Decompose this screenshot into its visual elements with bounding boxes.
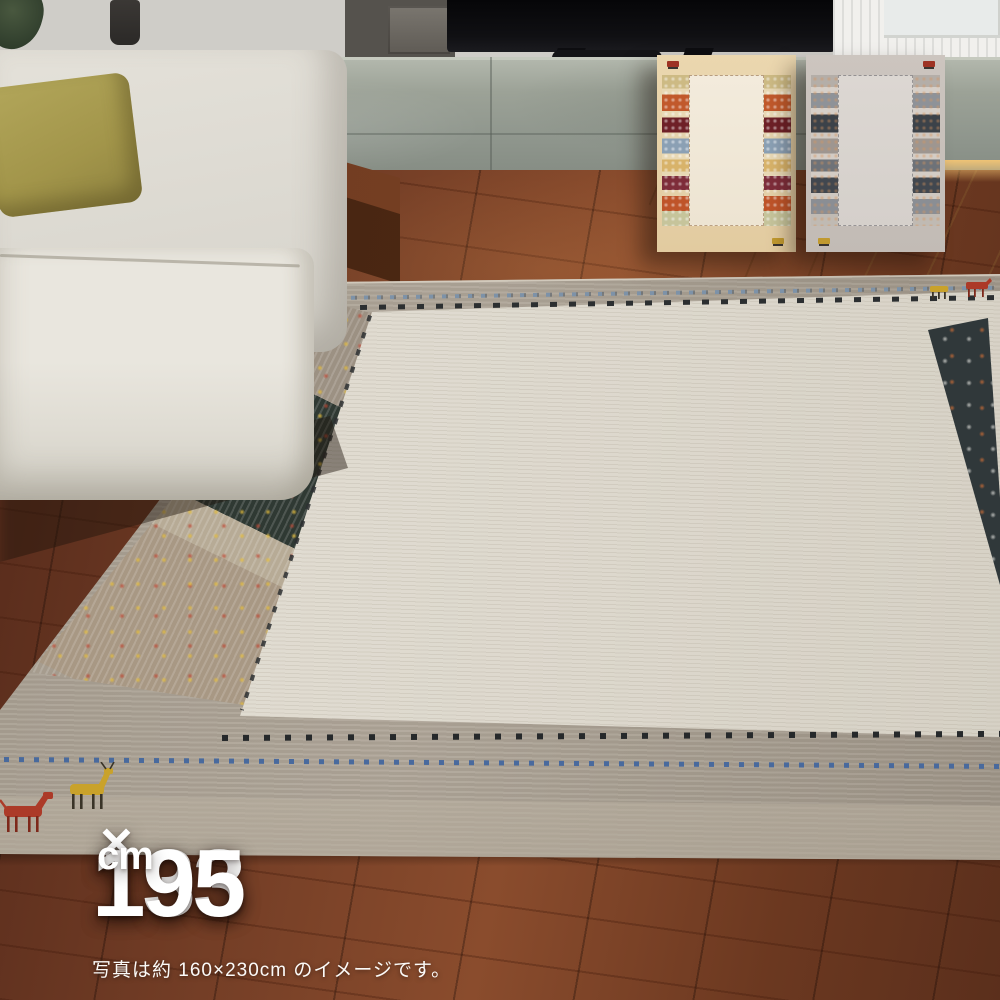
- swatch-animal-motif-icon: [667, 61, 679, 67]
- swatch-border-right: [913, 75, 940, 226]
- red-horse-icon: [0, 792, 53, 832]
- corner-animal-motifs-icon: [926, 278, 996, 302]
- rug-animal-row-bottom: [222, 731, 1000, 741]
- swatch-field: [838, 75, 913, 226]
- variant-swatch-gray[interactable]: [806, 55, 945, 252]
- yellow-deer-icon: [70, 762, 114, 809]
- swatch-animal-motif-icon: [818, 238, 830, 244]
- small-yellow-animal-icon: [930, 286, 948, 299]
- variant-swatch-beige[interactable]: [657, 55, 796, 252]
- small-red-animal-icon: [966, 278, 992, 297]
- sofa-seat: [0, 248, 314, 500]
- window: [884, 0, 1000, 38]
- photo-caption: 写真は約 160×230cm のイメージです。: [92, 955, 451, 982]
- swatch-border-left: [811, 75, 838, 226]
- swatch-border-right: [764, 75, 791, 226]
- belgium-flag-icon: [58, 57, 205, 158]
- swatch-border-left: [662, 75, 689, 226]
- product-photo-scene: 133 × 195 cm 写真は約 160×230cm のイメージです。: [0, 0, 1000, 1000]
- swatch-animal-motif-icon: [772, 238, 784, 244]
- swatch-animal-motif-icon: [923, 61, 935, 67]
- tv-screen: [447, 0, 835, 52]
- size-unit: cm: [97, 836, 153, 876]
- shelf-box: [388, 6, 450, 54]
- stone-grout-line: [490, 57, 492, 173]
- swatch-field: [689, 75, 764, 226]
- vase: [110, 0, 140, 45]
